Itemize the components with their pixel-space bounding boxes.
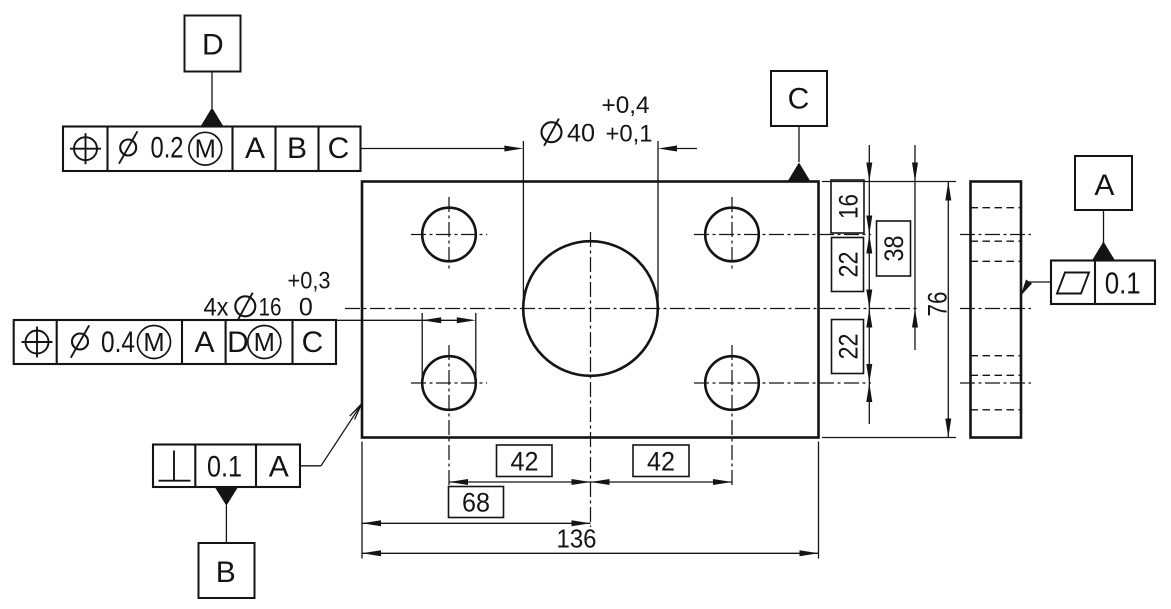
svg-text:+0,4: +0,4 (602, 92, 650, 119)
svg-text:D: D (202, 29, 224, 62)
svg-text:C: C (328, 132, 350, 165)
svg-text:+0,1: +0,1 (606, 121, 653, 148)
svg-text:68: 68 (462, 487, 490, 517)
svg-text:A: A (1094, 169, 1114, 202)
svg-text:42: 42 (647, 446, 675, 476)
svg-text:0.1: 0.1 (1105, 266, 1141, 301)
svg-text:C: C (788, 82, 810, 115)
svg-text:22: 22 (834, 252, 864, 278)
svg-text:16: 16 (834, 194, 864, 219)
svg-text:0.1: 0.1 (207, 450, 242, 483)
svg-text:16: 16 (259, 294, 282, 322)
svg-text:0: 0 (299, 294, 313, 322)
svg-text:M: M (195, 136, 216, 164)
svg-text:0.4: 0.4 (101, 326, 135, 359)
svg-text:22: 22 (834, 334, 864, 360)
svg-text:A: A (194, 326, 214, 359)
svg-text:B: B (287, 132, 307, 165)
svg-text:B: B (216, 556, 236, 589)
svg-text:C: C (302, 326, 324, 359)
svg-text:136: 136 (557, 524, 597, 554)
svg-text:76: 76 (923, 292, 953, 317)
svg-text:38: 38 (879, 236, 909, 262)
svg-text:42: 42 (511, 446, 539, 476)
svg-text:M: M (143, 329, 164, 357)
svg-text:+0,3: +0,3 (288, 268, 331, 295)
svg-text:A: A (269, 450, 289, 483)
svg-text:40: 40 (567, 120, 595, 148)
svg-text:A: A (245, 132, 265, 165)
svg-text:0.2: 0.2 (151, 132, 184, 165)
svg-text:4x: 4x (204, 294, 229, 322)
svg-text:D: D (227, 326, 249, 359)
svg-text:M: M (254, 329, 275, 357)
